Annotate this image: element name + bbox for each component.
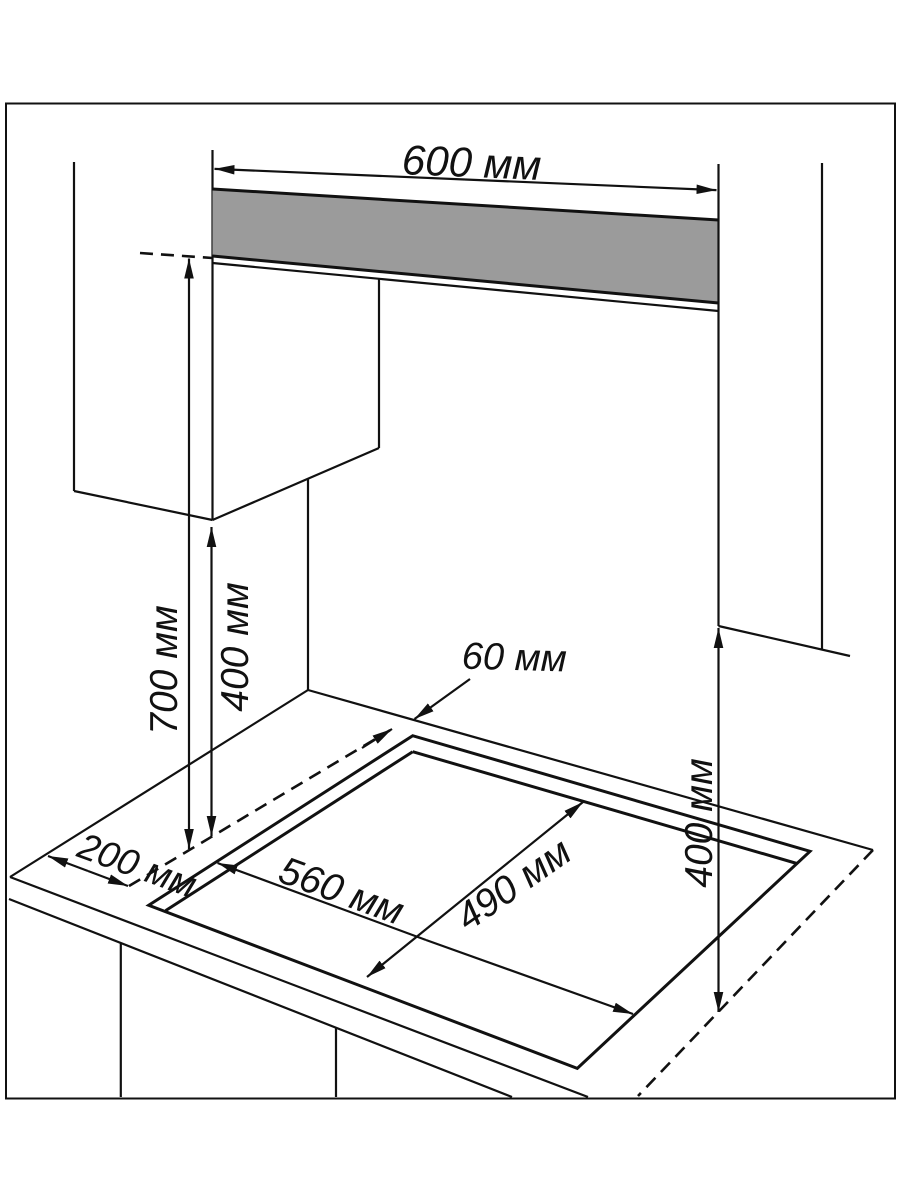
svg-text:200 мм: 200 мм bbox=[72, 825, 202, 906]
svg-text:700 мм: 700 мм bbox=[143, 605, 186, 734]
svg-text:400 мм: 400 мм bbox=[214, 582, 257, 711]
svg-text:600 мм: 600 мм bbox=[401, 136, 542, 189]
svg-text:60 мм: 60 мм bbox=[461, 636, 567, 681]
svg-text:490 мм: 490 мм bbox=[449, 830, 580, 939]
svg-text:400 мм: 400 мм bbox=[678, 758, 721, 887]
svg-text:560 мм: 560 мм bbox=[273, 849, 409, 934]
